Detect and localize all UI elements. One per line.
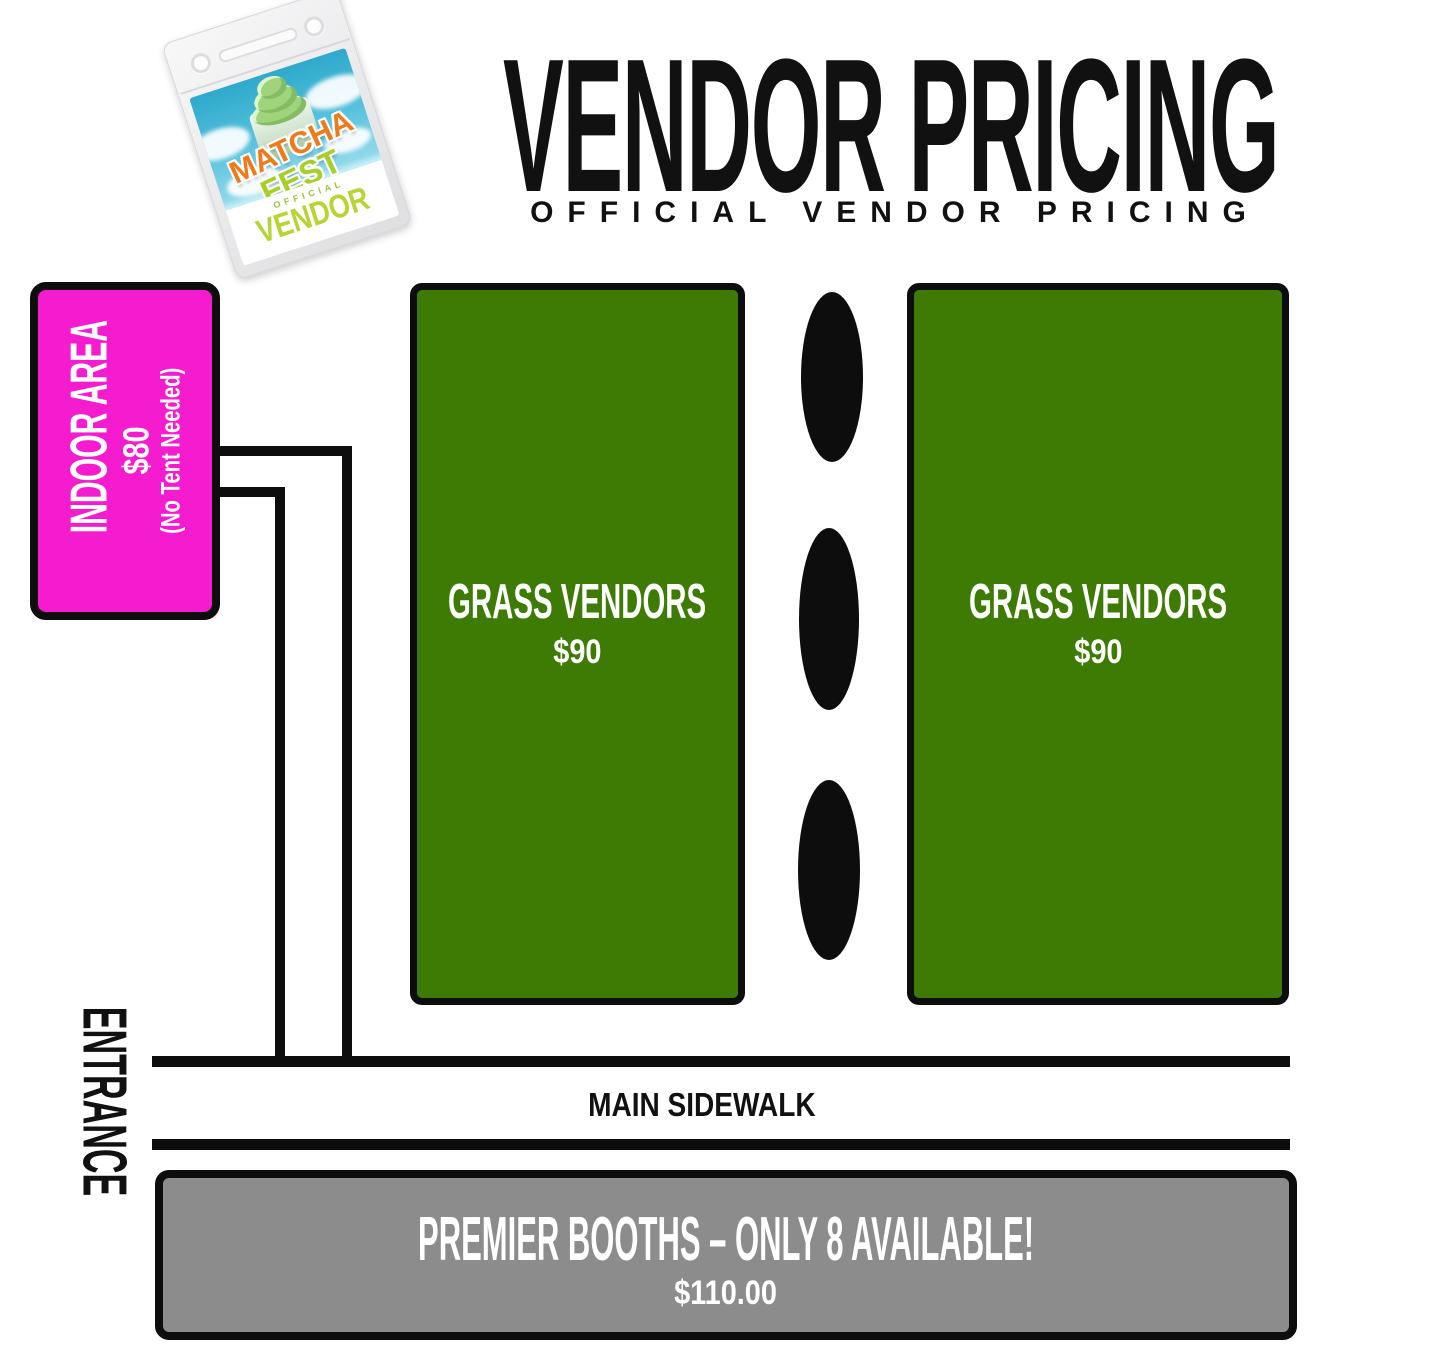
tree-marker-icon <box>799 528 859 710</box>
grass-right-label: GRASS VENDORS <box>969 577 1227 628</box>
premier-booths-price: $110.00 <box>675 1275 778 1312</box>
indoor-path-outer-vertical <box>342 446 352 1062</box>
indoor-area-label: INDOOR AREA <box>63 320 115 533</box>
indoor-path-outer-horizontal <box>216 446 352 456</box>
page-title: VENDOR PRICING <box>503 31 1278 221</box>
indoor-area-price: $80 <box>115 427 156 475</box>
header: VENDOR PRICING <box>503 50 1303 202</box>
premier-booths-label: PREMIER BOOTHS – ONLY 8 AVAILABLE! <box>418 1209 1034 1271</box>
page-subtitle: OFFICIAL VENDOR PRICING <box>530 196 1260 229</box>
indoor-area-text: INDOOR AREA $80 (No Tent Needed) <box>63 291 186 611</box>
matcha-fest-badge: MATCHA FEST OFFICIAL VENDOR <box>161 0 413 280</box>
grass-left-label: GRASS VENDORS <box>448 577 706 628</box>
sidewalk-top-line <box>152 1056 1290 1067</box>
indoor-area-note: (No Tent Needed) <box>157 368 187 534</box>
header-subtitle-row: OFFICIAL VENDOR PRICING <box>500 196 1290 230</box>
indoor-path-inner-vertical <box>275 487 285 1062</box>
vendor-pricing-flyer: MATCHA FEST OFFICIAL VENDOR VENDOR PRICI… <box>0 0 1445 1370</box>
grass-right-price: $90 <box>1074 634 1122 671</box>
sidewalk-bottom-line <box>152 1139 1290 1150</box>
zone-grass-vendors-left: GRASS VENDORS $90 <box>410 283 745 1005</box>
entrance-label: ENTRANCE <box>69 1006 140 1195</box>
zone-premier-booths: PREMIER BOOTHS – ONLY 8 AVAILABLE! $110.… <box>155 1170 1297 1340</box>
tree-marker-icon <box>801 292 863 462</box>
grass-left-price: $90 <box>553 634 601 671</box>
zone-indoor-area: INDOOR AREA $80 (No Tent Needed) <box>30 282 220 620</box>
entrance-label-wrap: ENTRANCE <box>68 995 140 1207</box>
zone-grass-vendors-right: GRASS VENDORS $90 <box>907 283 1289 1005</box>
main-sidewalk-label: MAIN SIDEWALK <box>588 1086 816 1124</box>
tree-marker-icon <box>798 780 860 960</box>
sidewalk-label-row: MAIN SIDEWALK <box>152 1086 1252 1124</box>
